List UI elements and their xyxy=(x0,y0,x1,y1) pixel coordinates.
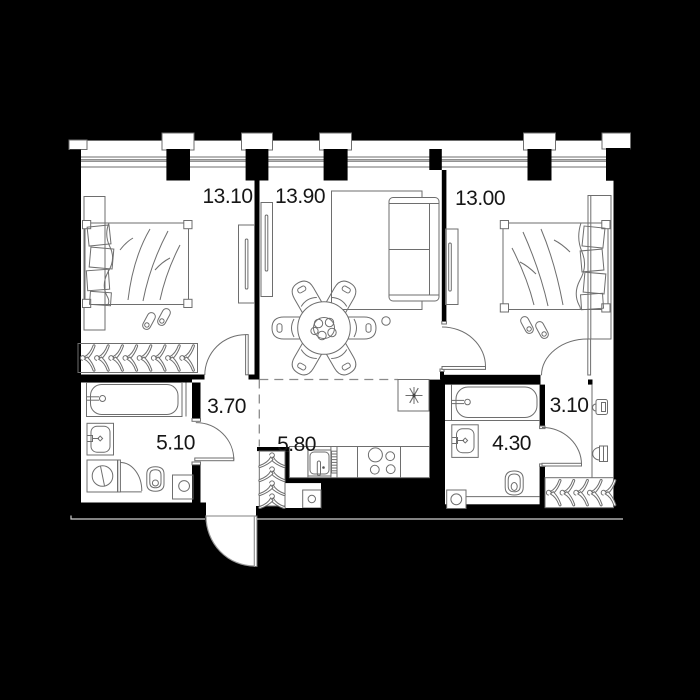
svg-text:13.10: 13.10 xyxy=(202,185,252,208)
svg-text:4.30: 4.30 xyxy=(492,432,531,455)
svg-text:5.10: 5.10 xyxy=(156,432,195,455)
svg-text:13.90: 13.90 xyxy=(275,185,325,208)
svg-text:13.00: 13.00 xyxy=(455,187,505,210)
svg-text:3.70: 3.70 xyxy=(207,395,246,418)
svg-text:3.10: 3.10 xyxy=(550,394,589,417)
svg-text:5.80: 5.80 xyxy=(277,433,316,456)
